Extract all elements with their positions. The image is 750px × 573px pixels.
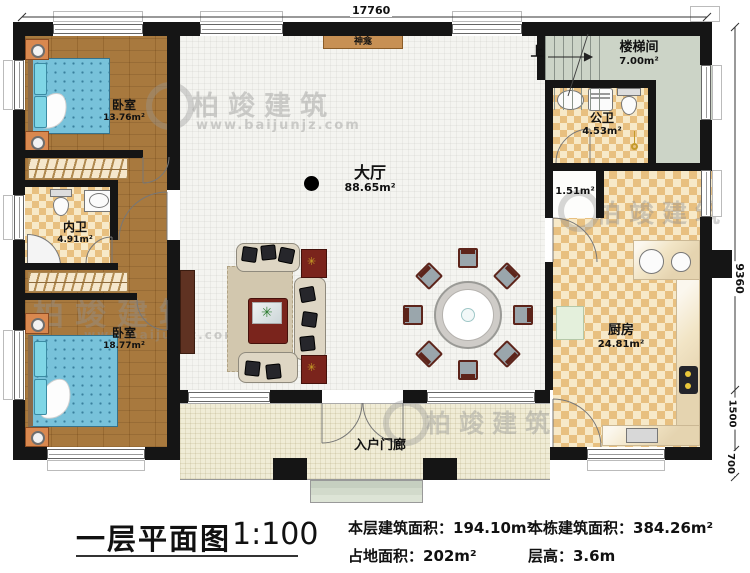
room-area: 4.53m² <box>570 126 634 138</box>
window-sill <box>690 6 720 22</box>
wall <box>25 263 118 270</box>
wall <box>700 217 712 460</box>
wall <box>180 390 188 403</box>
wall <box>545 80 656 88</box>
window-sill <box>3 195 13 240</box>
pillow <box>34 379 47 415</box>
window <box>452 24 522 34</box>
room-label-bedroom1: 卧室 13.76m² <box>94 99 154 123</box>
wall <box>545 163 712 171</box>
sofa-cushion <box>299 335 315 351</box>
shrine-label: 神龛 <box>323 37 403 47</box>
nightstand <box>25 39 49 60</box>
nightstand <box>25 131 49 152</box>
room-name: 公卫 <box>570 112 634 126</box>
dining-table-center <box>461 308 475 322</box>
stair-treads <box>545 36 600 110</box>
wall <box>535 390 550 403</box>
dim-right-total: 9360 <box>733 261 746 296</box>
dining-chair <box>513 305 533 325</box>
window-sill <box>3 60 13 110</box>
sofa-cushion <box>299 286 316 303</box>
wall <box>550 447 587 460</box>
kitchen-basin <box>671 252 691 272</box>
window-sill <box>200 11 283 22</box>
wall <box>13 240 25 330</box>
room-label-porch: 入户门廊 <box>325 439 435 454</box>
room-area: 4.91m² <box>44 235 106 245</box>
window-sill <box>47 460 145 471</box>
room-label-kitchen: 厨房 24.81m² <box>582 324 660 350</box>
window <box>701 170 711 217</box>
sofa-cushion <box>265 363 281 379</box>
sofa-cushion <box>241 246 258 263</box>
wall <box>13 447 47 460</box>
wall <box>283 22 452 36</box>
window <box>427 392 535 402</box>
window-sill <box>712 65 722 120</box>
sofa-cushion <box>260 244 276 260</box>
wall <box>665 447 712 460</box>
dining-chair <box>403 305 423 325</box>
window-sill <box>452 11 522 22</box>
room-name: 厨房 <box>582 324 660 339</box>
sink-basin <box>89 193 109 208</box>
wall <box>545 80 553 163</box>
wall <box>700 22 712 65</box>
room-label-public-bath: 公卫 4.53m² <box>570 112 634 137</box>
toilet-tank <box>617 88 641 96</box>
floor-plan-canvas: 柏竣建筑 www.baijunjz.com 柏竣建筑 www.baijunjz.… <box>0 0 750 573</box>
wall <box>13 110 25 195</box>
window <box>14 330 24 400</box>
porch-pillar <box>423 458 457 480</box>
window <box>14 195 24 240</box>
room-area: 88.65m² <box>330 182 410 195</box>
wall <box>648 88 656 163</box>
room-name: 卧室 <box>94 327 154 341</box>
wall <box>143 22 200 36</box>
dim-right-porch: 1500 <box>726 398 737 430</box>
room-label-hall: 大厅 88.65m² <box>330 164 410 195</box>
wall <box>167 36 180 190</box>
dim-right-step: 700 <box>725 451 736 476</box>
wall <box>403 390 427 403</box>
stairs-up-label: 上 <box>528 46 546 61</box>
stove-burner <box>685 371 691 377</box>
plant-icon: ✳ <box>307 361 316 374</box>
window <box>587 449 665 459</box>
porch-pillar <box>273 458 307 480</box>
room-area: 7.00m² <box>598 56 680 68</box>
window-sill <box>53 11 143 22</box>
room-area: 24.81m² <box>582 339 660 351</box>
floor-drain-stem <box>634 131 635 143</box>
window-sill <box>587 460 665 471</box>
wardrobe <box>28 158 128 179</box>
wardrobe <box>28 272 128 292</box>
wall <box>25 293 137 300</box>
window-sill <box>712 170 722 217</box>
window <box>200 24 283 34</box>
plant-icon: ✳ <box>307 255 316 268</box>
title-underline <box>76 555 298 557</box>
stat-footprint: 占地面积：202m² <box>348 545 477 566</box>
sofa-cushion <box>278 247 296 265</box>
window <box>53 24 143 34</box>
wall <box>270 390 322 403</box>
plan-title: 一层平面图 <box>76 516 231 558</box>
watermark-brand: 柏竣建筑 <box>426 404 558 440</box>
nightstand <box>25 427 49 447</box>
kitchen-basin <box>639 249 664 274</box>
sofa-cushion <box>244 360 260 376</box>
fridge <box>556 306 584 340</box>
wall <box>110 187 118 240</box>
pillow <box>34 96 47 128</box>
nightstand <box>25 313 49 334</box>
window-sill <box>3 330 13 400</box>
room-label-bedroom2: 卧室 18.77m² <box>94 327 154 351</box>
window <box>188 392 270 402</box>
room-name: 大厅 <box>330 164 410 182</box>
dim-top: 17760 <box>350 4 392 17</box>
entry-steps <box>310 480 423 503</box>
window <box>47 449 145 459</box>
room-area: 13.76m² <box>94 113 154 123</box>
plant-icon: ✳ <box>261 305 273 321</box>
room-label-inner-bath: 内卫 4.91m² <box>44 221 106 245</box>
wall <box>25 180 118 187</box>
kitchen-sink <box>626 428 658 443</box>
dining-chair <box>458 360 478 380</box>
pillow <box>34 63 47 95</box>
toilet-tank <box>50 189 72 197</box>
window <box>14 60 24 110</box>
wall <box>167 240 180 460</box>
flue-bump <box>712 250 732 278</box>
stove-burner <box>685 383 691 389</box>
window <box>701 65 711 120</box>
wall <box>545 262 553 390</box>
stat-building-area: 本栋建筑面积：384.26m² <box>528 517 713 538</box>
watermark-url: www.baijunjz.com <box>196 118 361 133</box>
room-label-stairwell: 楼梯间 7.00m² <box>598 41 680 67</box>
wall <box>13 22 25 60</box>
room-name: 楼梯间 <box>598 41 680 56</box>
floor-drain <box>631 143 638 150</box>
stat-floor-area: 本层建筑面积：194.10m² <box>348 517 533 538</box>
wall <box>25 150 143 158</box>
plan-scale: 1:100 <box>232 517 318 552</box>
dining-chair <box>458 248 478 268</box>
sofa-cushion <box>301 311 318 328</box>
room-area: 18.77m² <box>94 341 154 351</box>
stat-storey-height: 层高：3.6m <box>528 545 615 566</box>
small-area-label: 1.51m² <box>550 186 600 198</box>
kitchen-counter-right <box>676 279 700 429</box>
room-name: 内卫 <box>44 221 106 235</box>
pillow <box>34 341 47 377</box>
structural-column <box>304 176 319 191</box>
tv-cabinet <box>180 270 195 354</box>
wall <box>522 22 712 36</box>
room-name: 卧室 <box>94 99 154 113</box>
